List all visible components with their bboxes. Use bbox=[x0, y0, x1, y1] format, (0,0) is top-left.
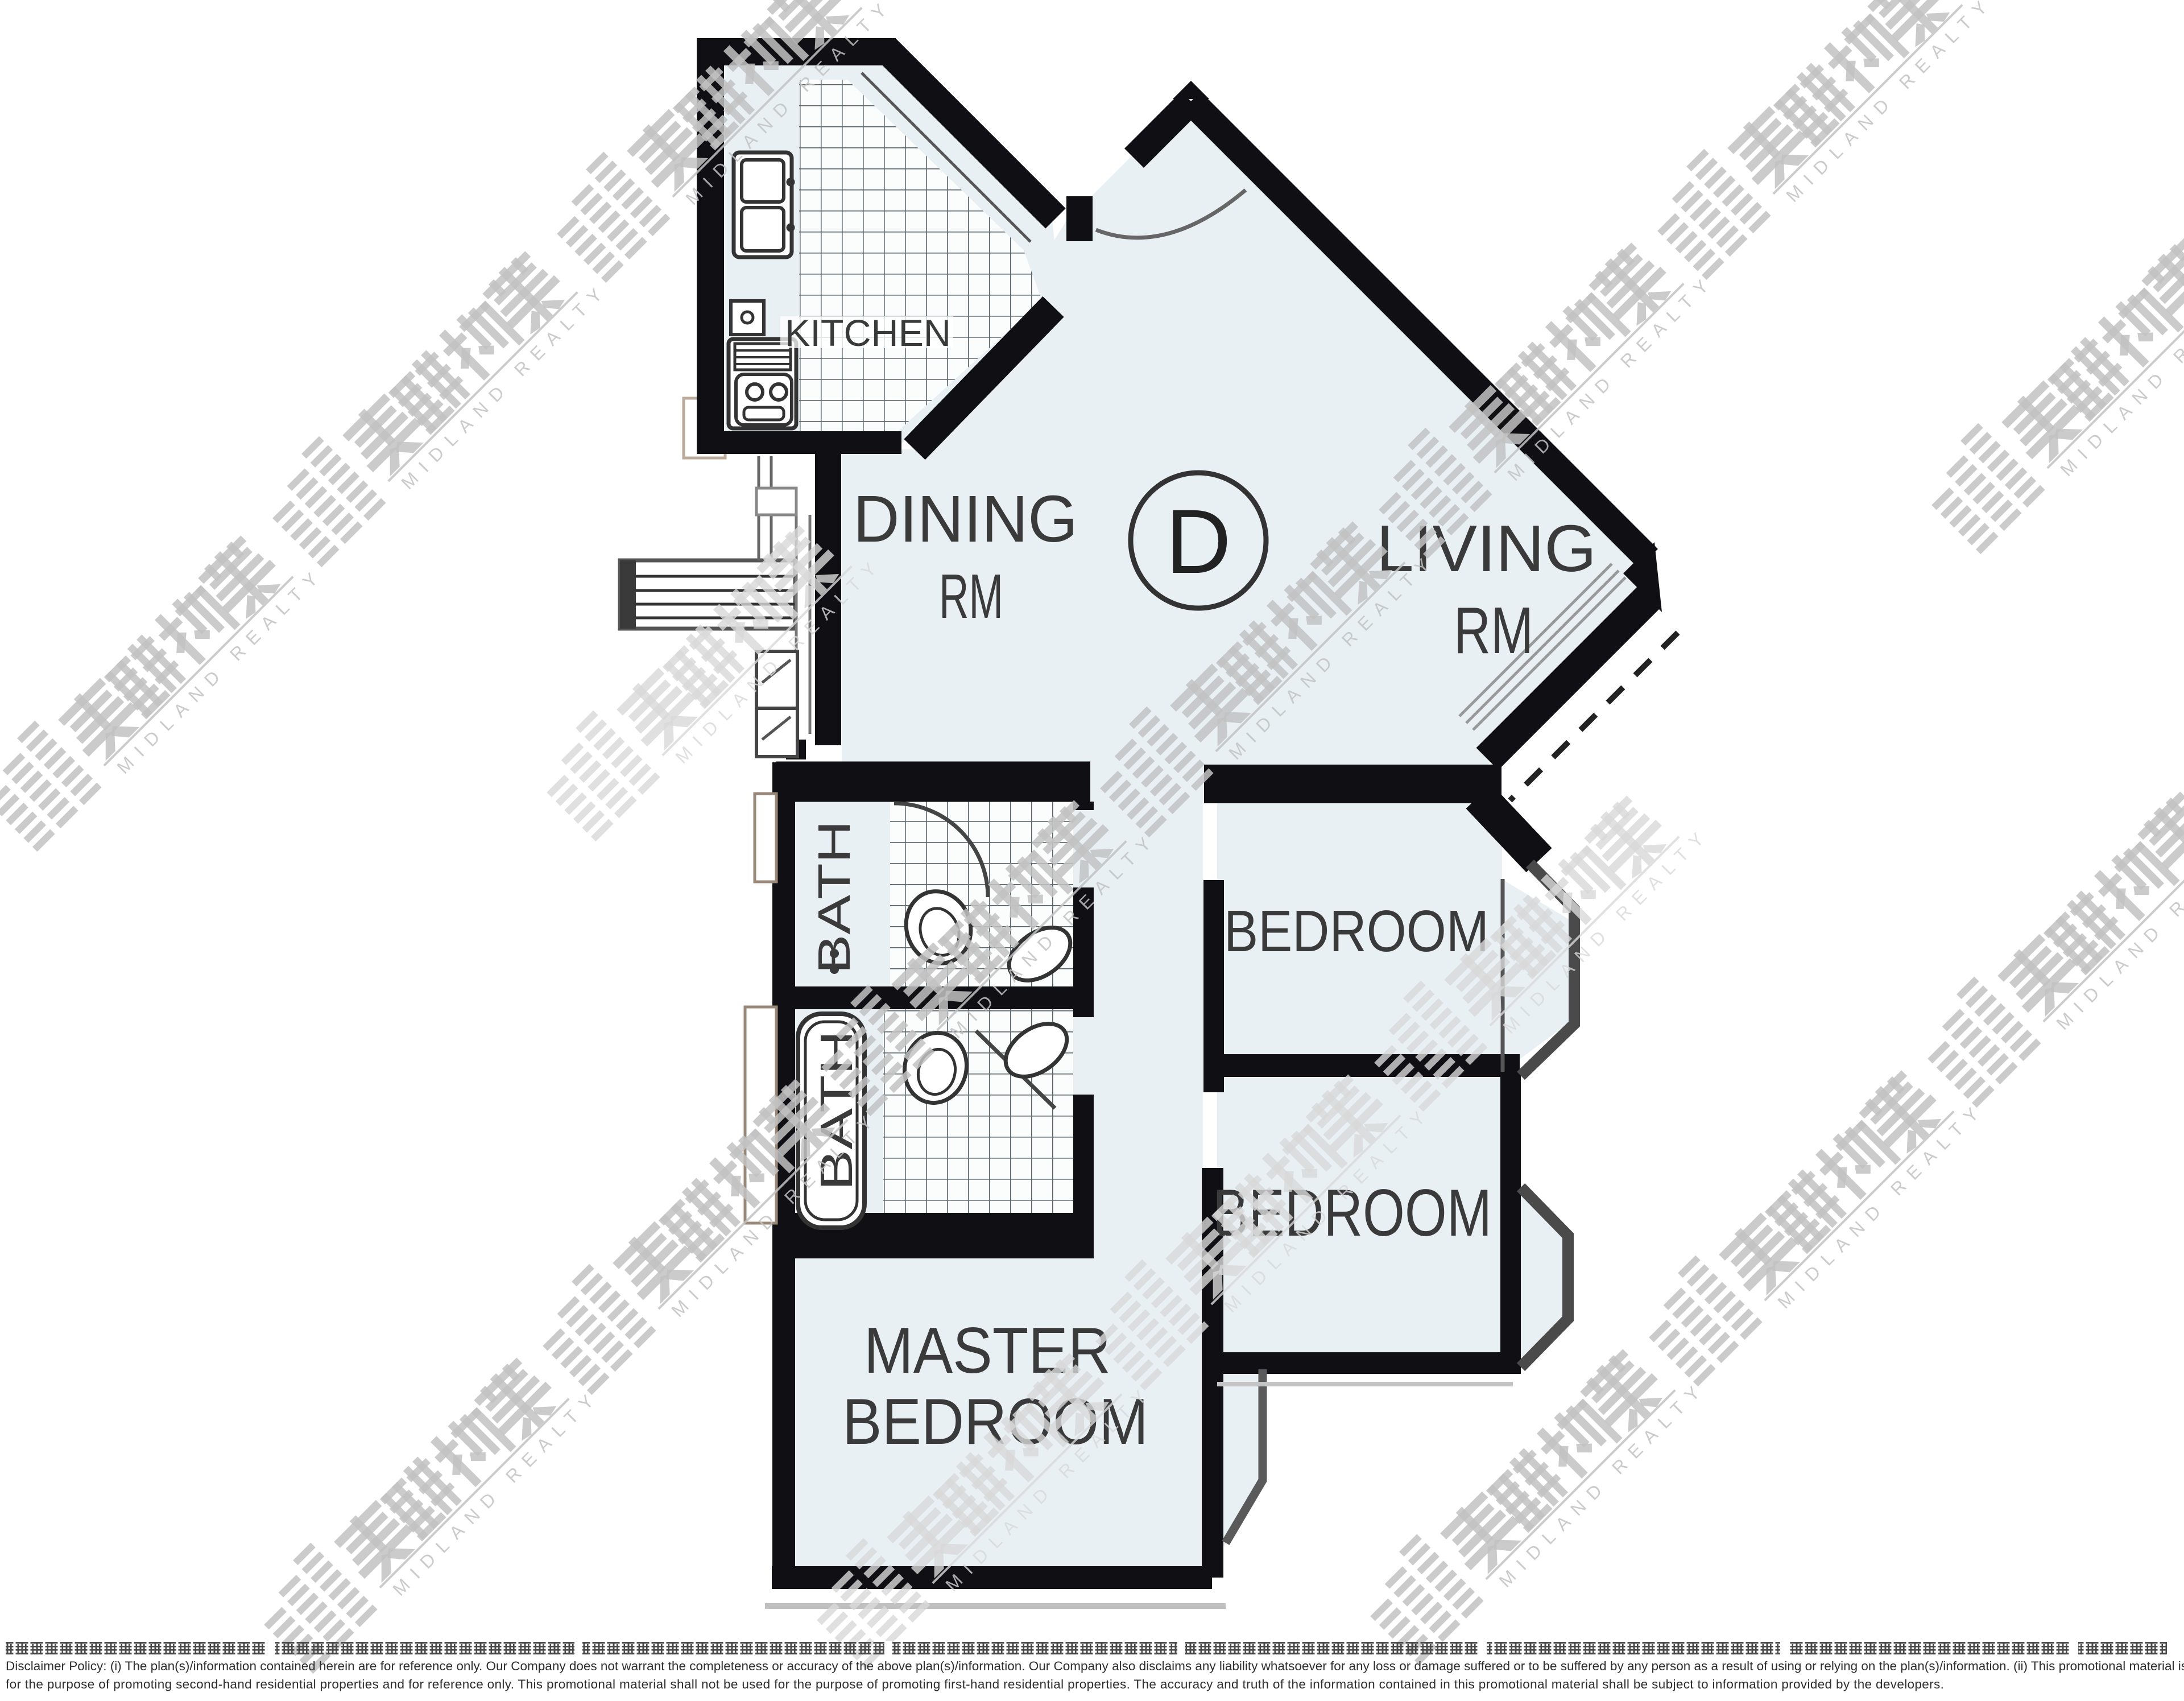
svg-text:RM: RM bbox=[1454, 593, 1533, 667]
svg-text:KITCHEN: KITCHEN bbox=[785, 312, 951, 354]
svg-text:D: D bbox=[1165, 490, 1231, 592]
svg-text:RM: RM bbox=[939, 562, 1003, 631]
svg-text:DINING: DINING bbox=[853, 482, 1078, 556]
svg-text:BEDROOM: BEDROOM bbox=[1224, 898, 1489, 964]
